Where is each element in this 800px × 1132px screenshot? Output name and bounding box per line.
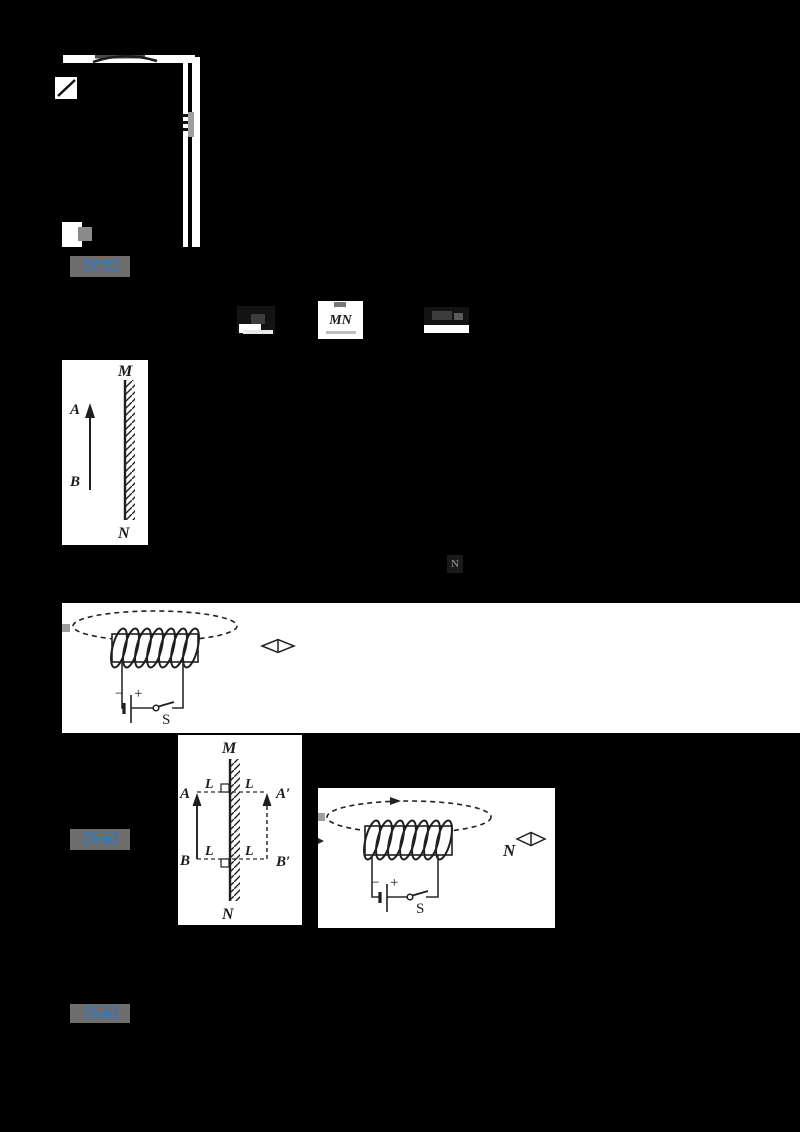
fragment-bottom-patch — [62, 222, 92, 247]
right-angle-mark — [221, 859, 229, 867]
label-battery-plus: + — [390, 875, 398, 891]
inline-formula-image-mn: MN — [318, 301, 363, 339]
field-direction-arrowhead-icon — [390, 797, 401, 805]
label-distance: L — [204, 844, 214, 859]
fragment — [318, 838, 324, 844]
mirror-hatching — [231, 759, 240, 901]
label-switch: S — [416, 901, 424, 917]
fragment-right-strips — [183, 57, 200, 247]
fragment — [251, 314, 265, 324]
label-distance: L — [204, 777, 214, 792]
mirror-line — [125, 380, 135, 520]
mirror-image-drawing: M N L L L L A B A′ B′ — [178, 735, 302, 925]
worksheet-page: { "colors": { "background": "#000000", "… — [0, 0, 800, 1132]
corrupted-figure-fragments — [55, 50, 205, 250]
fragment — [326, 331, 356, 334]
label-arrow-tail: B — [69, 474, 80, 490]
label-distance: L — [244, 844, 254, 859]
fragment — [454, 313, 463, 320]
inline-formula-text: MN — [318, 313, 363, 329]
fragment-top-bar — [63, 55, 195, 63]
fragment — [62, 624, 70, 632]
right-angle-mark — [221, 784, 229, 792]
object-arrow — [193, 793, 202, 859]
answer-label: 【答案】 — [70, 1004, 130, 1023]
battery-symbol — [380, 884, 387, 912]
fragment-left-notch — [55, 77, 77, 99]
label-battery-minus: − — [115, 686, 123, 702]
circuit-wires — [372, 855, 438, 897]
arrowhead-icon — [263, 793, 272, 806]
image-arrow — [263, 793, 272, 859]
label-distance: L — [244, 777, 254, 792]
label-mirror-top: M — [117, 363, 133, 380]
fragment — [334, 302, 346, 307]
label-mirror-bottom: N — [117, 525, 131, 542]
figure-mirror-object: M N A B — [62, 360, 148, 545]
answer-label: 【答案】 — [70, 256, 130, 277]
answer-label: 【答案】 — [70, 829, 130, 850]
mirror-object-drawing: M N A B — [62, 360, 148, 545]
label-arrow-head: A — [69, 402, 80, 418]
label-image-tail: B′ — [275, 854, 290, 870]
object-arrow — [85, 403, 95, 490]
figure-solenoid-open: − + S — [62, 603, 800, 733]
label-image-head: A′ — [275, 786, 290, 802]
switch-symbol — [153, 702, 174, 711]
battery-symbol — [124, 695, 131, 723]
switch-symbol — [407, 891, 428, 900]
label-battery-minus: − — [371, 875, 379, 891]
solenoid-needle-drawing: − + S N — [318, 788, 555, 928]
inline-formula-image — [424, 307, 469, 333]
label-battery-plus: + — [134, 686, 142, 702]
arrowhead-icon — [193, 793, 202, 806]
compass-needle-icon — [517, 833, 545, 846]
fragment — [318, 813, 325, 821]
solenoid-open-drawing: − + S — [62, 603, 800, 733]
compass-needle-icon — [262, 640, 294, 653]
arrowhead-icon — [85, 403, 95, 418]
fragment — [424, 325, 469, 333]
fragment — [432, 311, 452, 320]
label-object-tail: B — [179, 853, 190, 869]
label-mirror-top: M — [221, 740, 237, 757]
inline-formula-image-n: N — [447, 555, 463, 573]
label-pole-n: N — [502, 841, 516, 860]
mirror-line — [230, 759, 240, 901]
figure-solenoid-needle: − + S N — [318, 788, 555, 928]
fragment — [243, 330, 273, 334]
label-mirror-bottom: N — [221, 906, 235, 923]
label-object-head: A — [179, 786, 190, 802]
solenoid-coil — [361, 819, 455, 861]
mirror-hatching — [126, 380, 135, 520]
inline-formula-image — [237, 306, 275, 334]
figure-mirror-image: M N L L L L A B A′ B′ — [178, 735, 302, 925]
label-switch: S — [162, 712, 170, 728]
